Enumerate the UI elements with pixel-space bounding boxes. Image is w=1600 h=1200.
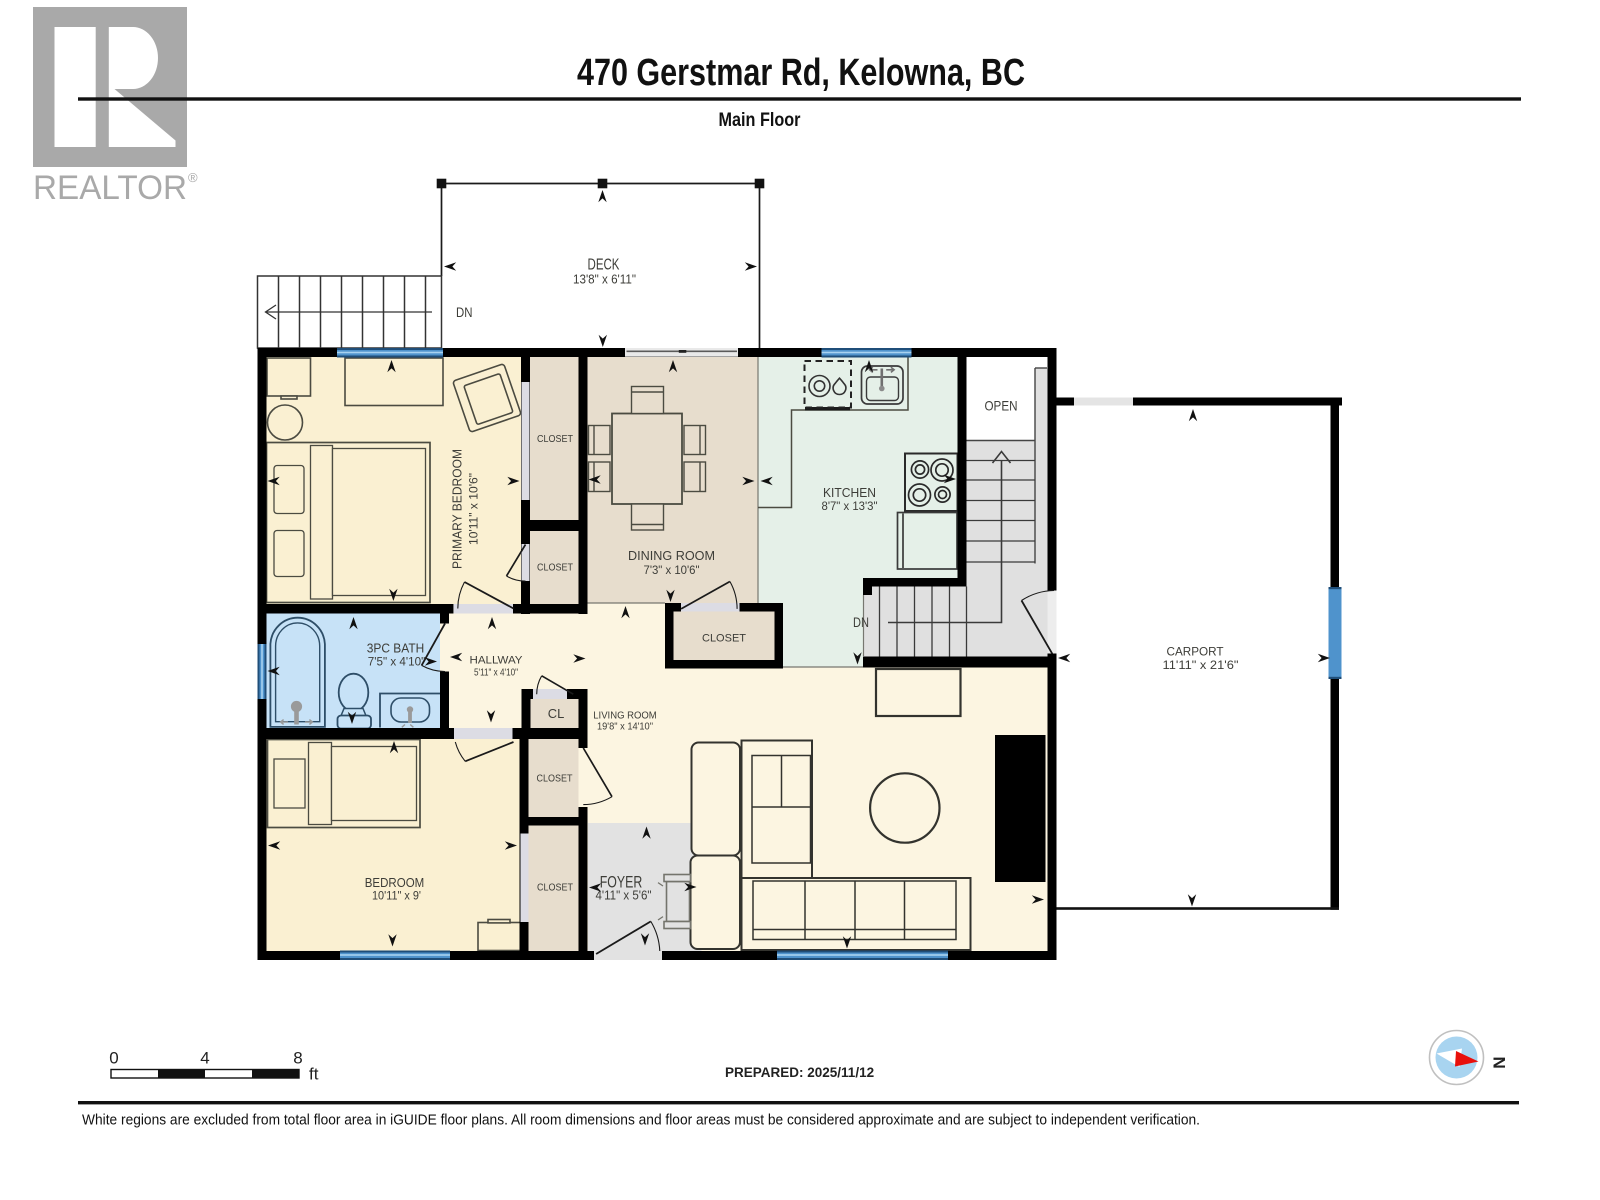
svg-text:5'11" x 4'10": 5'11" x 4'10" [474, 667, 518, 679]
svg-text:CLOSET: CLOSET [537, 563, 573, 574]
svg-text:®: ® [188, 170, 198, 185]
svg-text:470 Gerstmar Rd, Kelowna, BC: 470 Gerstmar Rd, Kelowna, BC [577, 52, 1025, 94]
svg-text:DINING ROOM: DINING ROOM [628, 549, 715, 563]
svg-text:DN: DN [456, 304, 473, 320]
svg-text:CLOSET: CLOSET [537, 883, 573, 894]
svg-text:OPEN: OPEN [985, 398, 1018, 414]
svg-text:ft: ft [309, 1065, 319, 1084]
svg-text:CLOSET: CLOSET [537, 434, 573, 445]
svg-text:KITCHEN: KITCHEN [823, 486, 876, 500]
svg-text:7'5" x 4'10": 7'5" x 4'10" [368, 655, 426, 669]
svg-text:10'11" x 9': 10'11" x 9' [372, 889, 421, 903]
svg-text:PRIMARY BEDROOM: PRIMARY BEDROOM [451, 449, 465, 569]
svg-text:8'7" x 13'3": 8'7" x 13'3" [822, 499, 878, 513]
svg-text:10'11" x 10'6": 10'11" x 10'6" [467, 473, 481, 545]
svg-text:3PC BATH: 3PC BATH [367, 642, 425, 656]
svg-text:8: 8 [293, 1049, 302, 1068]
svg-text:0: 0 [109, 1049, 118, 1068]
svg-text:N: N [1490, 1057, 1509, 1069]
svg-text:4'11" x 5'6": 4'11" x 5'6" [596, 888, 652, 903]
svg-text:11'11" x 21'6": 11'11" x 21'6" [1163, 658, 1239, 672]
svg-text:13'8" x 6'11": 13'8" x 6'11" [573, 273, 636, 287]
svg-text:White regions are excluded fro: White regions are excluded from total fl… [82, 1113, 1200, 1129]
svg-text:Main Floor: Main Floor [719, 110, 802, 131]
svg-text:CL: CL [548, 706, 565, 721]
svg-text:CLOSET: CLOSET [702, 633, 746, 645]
svg-text:LIVING ROOM: LIVING ROOM [593, 711, 657, 722]
svg-text:DN: DN [853, 614, 869, 630]
svg-text:DECK: DECK [588, 257, 620, 274]
svg-text:7'3" x 10'6": 7'3" x 10'6" [644, 563, 700, 577]
svg-text:CARPORT: CARPORT [1167, 645, 1225, 659]
svg-text:HALLWAY: HALLWAY [470, 655, 524, 667]
svg-text:PREPARED: 2025/11/12: PREPARED: 2025/11/12 [725, 1065, 874, 1080]
svg-text:REALTOR: REALTOR [33, 169, 187, 207]
svg-text:19'8" x 14'10": 19'8" x 14'10" [597, 722, 653, 733]
svg-text:4: 4 [200, 1049, 209, 1068]
svg-text:CLOSET: CLOSET [537, 774, 573, 785]
